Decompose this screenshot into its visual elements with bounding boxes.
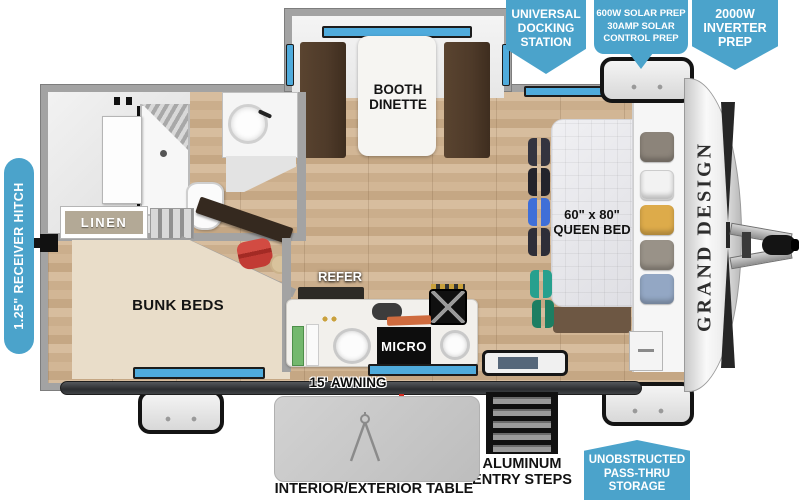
shoes-pair-5 — [530, 270, 552, 298]
refer-label: REFER — [308, 269, 372, 284]
latch-dots-icon — [631, 408, 665, 414]
faucet-knobs-icon — [321, 316, 339, 322]
booth-dinette-label: BOOTH DINETTE — [360, 82, 436, 112]
kitchen-sink-icon — [333, 328, 371, 364]
folded-clothes-2 — [640, 170, 674, 200]
shoes-pair-2 — [528, 168, 550, 196]
compass-icon — [335, 409, 395, 469]
microwave: MICRO — [377, 327, 431, 366]
entry-steps-graphic — [486, 392, 558, 454]
latch-dots-icon — [164, 416, 198, 422]
hitch-coupler-tip — [791, 239, 799, 251]
bunk-beds-label: BUNK BEDS — [100, 297, 256, 314]
queen-bed-label: 60" x 80" QUEEN BED — [547, 207, 637, 237]
folded-clothes-1 — [640, 132, 674, 162]
callout-solar-pointer — [629, 53, 653, 69]
shoes-pair-6 — [532, 300, 554, 328]
grand-design-logo-text: GRAND DESIGN — [690, 96, 720, 376]
shoes-pair-4 — [528, 228, 550, 256]
latch-dots-icon — [630, 84, 664, 90]
callout-passthru-storage: UNOBSTRUCTED PASS-THRU STORAGE — [584, 440, 690, 500]
steps-line1: ALUMINUM — [483, 456, 562, 472]
bed-base-bench — [553, 307, 631, 333]
queen-bed-size: 60" x 80" — [564, 207, 620, 222]
dinette-bench-right — [444, 42, 490, 158]
cutting-board-green — [292, 326, 304, 366]
docking-line1: UNIVERSAL — [506, 7, 586, 21]
dinette-bench-left — [300, 42, 346, 158]
tongue-jack — [742, 232, 751, 258]
bathroom-right-wall — [297, 92, 306, 240]
solar-line1: 600W SOLAR PREP — [594, 8, 688, 21]
bedroom-window — [524, 86, 604, 97]
passthru-line2: PASS-THRU — [584, 468, 690, 482]
callout-receiver-hitch-wrap: 1.25" RECEIVER HITCH — [4, 158, 34, 354]
folded-clothes-4 — [640, 240, 674, 270]
shoes-pair-1 — [528, 138, 550, 166]
solar-line2: 30AMP SOLAR — [594, 21, 688, 34]
shoes-pair-3 — [528, 198, 550, 226]
storage-bay-door-left — [138, 390, 224, 434]
kitchen-sink2-icon — [440, 330, 470, 360]
entry-door-glass — [498, 357, 538, 369]
cutting-board-orange — [387, 315, 431, 326]
cooktop-icon — [429, 289, 467, 325]
docking-line3: STATION — [506, 35, 586, 49]
rv-floorplan-diagram: BOOTH DINETTE LINEN BUNK BEDS REFER MICR… — [0, 0, 800, 500]
callout-solar-prep: 600W SOLAR PREP 30AMP SOLAR CONTROL PREP — [594, 0, 688, 54]
bathroom-door — [102, 116, 142, 204]
callout-universal-docking-station: UNIVERSAL DOCKING STATION — [506, 0, 586, 74]
docking-line2: DOCKING — [506, 21, 586, 35]
queen-bed-name: QUEEN BED — [553, 222, 630, 237]
booth-dinette-line1: BOOTH — [374, 82, 423, 97]
callout-receiver-hitch: 1.25" RECEIVER HITCH — [4, 158, 34, 354]
inverter-line2: INVERTER — [692, 21, 778, 35]
cutting-board-white — [306, 324, 319, 366]
booth-dinette-line2: DINETTE — [369, 97, 427, 112]
drawer-handle-icon — [638, 349, 654, 352]
interior-exterior-table-label: INTERIOR/EXTERIOR TABLE — [258, 481, 490, 497]
exterior-table-graphic — [274, 396, 480, 482]
inverter-line3: PREP — [692, 35, 778, 49]
folded-jeans — [640, 274, 674, 304]
interior-steps — [150, 208, 194, 239]
folded-clothes-3 — [640, 205, 674, 235]
linen-label: LINEN — [65, 211, 143, 234]
passthru-line1: UNOBSTRUCTED — [584, 454, 690, 468]
bunk-window — [133, 367, 265, 379]
inverter-line1: 2000W — [692, 7, 778, 21]
door-hinge-icons — [114, 97, 132, 105]
passthru-line3: STORAGE — [584, 481, 690, 495]
callout-inverter-prep: 2000W INVERTER PREP — [692, 0, 778, 70]
awning-label: 15' AWNING — [292, 375, 404, 390]
solar-line3: CONTROL PREP — [594, 33, 688, 46]
shower-drain-icon — [160, 150, 167, 157]
receiver-hitch-stub — [40, 234, 58, 252]
dinette-left-window — [286, 44, 294, 86]
